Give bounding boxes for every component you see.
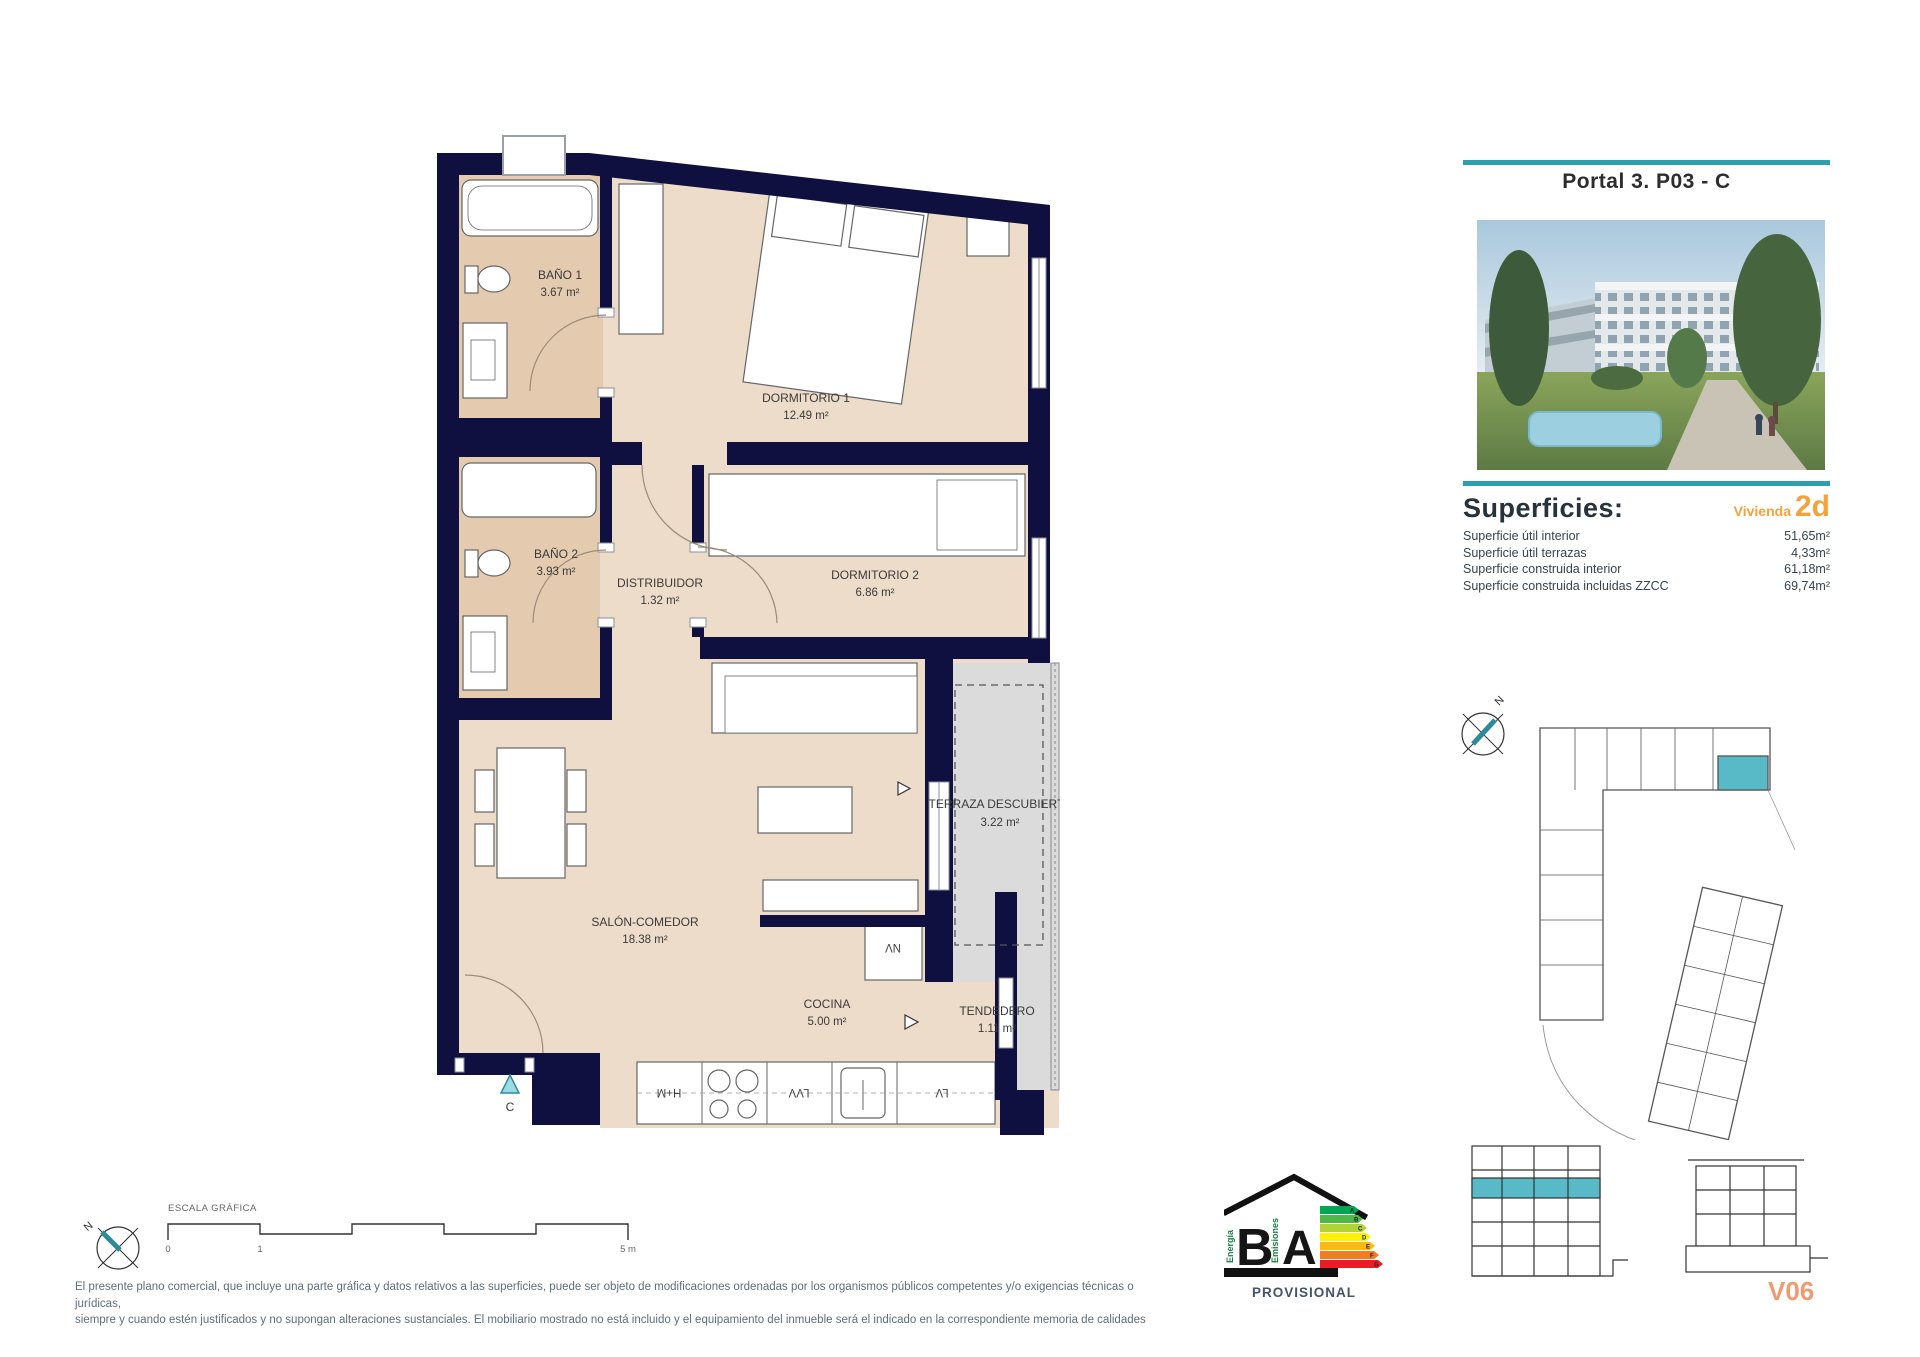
superficies-rows: Superficie útil interior 51,65m² Superfi… [1463,528,1830,594]
room-area-dorm2: 6.86 m² [856,587,895,599]
section-left [1472,1146,1628,1276]
scale-tick-5: 5 m [620,1244,636,1255]
compass-needle [102,1232,120,1250]
energy-scale-letter: B [1354,1218,1359,1224]
superficies-heading: Superficies: [1463,493,1624,524]
toilet-2 [478,550,510,576]
energy-rating-logo: Energía B Emisiones A A B C D E F G PROV… [1224,1170,1384,1302]
sup-label: Superficie construida interior [1463,561,1621,578]
plan-sheet: C BAÑO 1 3.67 m² BAÑO 2 3.93 m² DORMITOR… [0,0,1920,1357]
toilet-1-tank [465,266,478,293]
superficies-row: Superficie construida incluidas ZZCC 69,… [1463,578,1830,595]
room-area-bano2: 3.93 m² [537,566,576,578]
chair [567,770,586,812]
hob-burner [738,1100,756,1118]
keyplan-lower-building [1649,887,1783,1139]
toilet-1 [478,266,510,292]
scale-bar-steps [168,1224,628,1240]
superficies-row: Superficie útil terrazas 4,33m² [1463,545,1830,562]
superficies-row: Superficie construida interior 61,18m² [1463,561,1830,578]
coffee-table [758,787,852,833]
room-area-dorm1: 12.49 m² [783,410,829,422]
room-area-distribuidor: 1.32 m² [641,595,680,607]
key-plan: N [1455,690,1870,1140]
floor-plan: C BAÑO 1 3.67 m² BAÑO 2 3.93 m² DORMITOR… [437,118,1060,1135]
header-rule [1463,160,1830,165]
scale-tick-1: 1 [257,1244,262,1255]
keyplan-compass: N [1462,694,1507,755]
label-lv: LV [935,1086,949,1098]
shaft [503,136,565,175]
sup-value: 69,74m² [1784,578,1830,595]
energy-status: PROVISIONAL [1252,1285,1356,1300]
bush [1591,366,1643,390]
room-label-salon: SALÓN-COMEDOR [591,914,699,929]
vivienda-code: 2d [1795,490,1830,523]
label-lvv: LVV [788,1086,809,1098]
sup-label: Superficie útil interior [1463,528,1580,545]
compass-needle [1473,720,1495,744]
hob-burner [708,1070,730,1092]
scale-bar: ESCALA GRÁFICA 0 1 5 m [158,1198,658,1256]
energy-scale-letter: G [1374,1263,1379,1269]
superficies-row: Superficie útil interior 51,65m² [1463,528,1830,545]
tree [1667,328,1707,388]
sup-label: Superficie útil terrazas [1463,545,1587,562]
room-area-cocina: 5.00 m² [808,1016,847,1028]
dining-table [497,748,565,878]
room-label-dorm2: DORMITORIO 2 [831,568,919,582]
superficies-panel: Superficies: Vivienda2d Superficie útil … [1463,490,1830,594]
bathtub-2 [462,463,596,517]
energy-scale-letter: C [1358,1227,1363,1233]
energy-word: Energía [1225,1229,1235,1263]
room-label-dorm1: DORMITORIO 1 [762,391,850,405]
energy-letter: B [1236,1219,1274,1277]
plot-boundary [1543,1025,1670,1140]
sup-value: 61,18m² [1784,561,1830,578]
room-label-distribuidor: DISTRIBUIDOR [617,576,703,590]
tree [1489,250,1549,406]
person [1768,416,1776,424]
emissions-word: Emisiones [1270,1218,1280,1263]
chair [567,824,586,866]
sup-label: Superficie construida incluidas ZZCC [1463,578,1669,595]
hob-burner [736,1070,758,1092]
compass-north-label: N [82,1220,96,1234]
sup-value: 51,65m² [1784,528,1830,545]
entrance-label: C [506,1100,515,1114]
building-photo [1477,220,1825,470]
scale-bar-title: ESCALA GRÁFICA [168,1203,257,1214]
double-bed [743,186,929,404]
pillow [849,206,924,257]
section-right [1686,1160,1828,1272]
energy-scale-letter: F [1370,1254,1374,1260]
chair [475,770,494,812]
compass-bottom: N [78,1212,153,1282]
room-label-terraza: TERRAZA DESCUBIERTA [929,797,1060,811]
pool [1529,412,1661,446]
emissions-letter: A [1282,1222,1317,1275]
vivienda-tag: Vivienda2d [1734,490,1830,524]
person [1755,414,1763,422]
plan-code: V06 [1768,1276,1814,1307]
keyplan-building [1540,728,1782,1140]
highlighted-unit [1718,756,1768,790]
room-area-salon: 18.38 m² [622,934,668,946]
disclaimer-line-1: El presente plano comercial, que incluye… [75,1279,1160,1312]
room-area-terraza: 3.22 m² [981,817,1020,829]
hob-burner [710,1100,728,1118]
disclaimer-line-2: siempre y cuando estén justificados y no… [75,1312,1160,1329]
energy-scale-letter: D [1362,1236,1367,1242]
room-area-tendedero: 1.11 m² [978,1023,1016,1035]
page-title: Portal 3. P03 - C [1463,170,1830,194]
tree [1733,234,1821,406]
sup-value: 4,33m² [1791,545,1830,562]
entrance-marker-icon [501,1075,519,1093]
scale-tick-0: 0 [165,1244,170,1255]
wardrobe [619,184,663,334]
vivienda-label: Vivienda [1734,503,1791,519]
chair [475,824,494,866]
energy-scale-arrows: A B C D E F G [1320,1206,1383,1269]
room-label-bano1: BAÑO 1 [538,268,582,282]
toilet-2-tank [465,550,478,577]
pillow [937,480,1017,550]
compass-north-label: N [1493,694,1507,708]
room-area-bano1: 3.67 m² [541,287,580,299]
energy-scale-letter: A [1350,1209,1355,1215]
room-label-cocina: COCINA [804,997,851,1011]
energy-scale-letter: E [1366,1245,1370,1251]
room-label-bano2: BAÑO 2 [534,547,578,561]
room-label-tendedero: TENDEDERO [959,1004,1034,1018]
tv-cabinet [763,880,918,911]
legal-disclaimer: El presente plano comercial, que incluye… [75,1279,1160,1329]
building-photo-art [1477,220,1825,470]
label-hm: H+M [657,1086,682,1098]
label-nv: NV [885,941,901,953]
highlighted-floor [1472,1178,1600,1198]
superficies-rule [1463,481,1830,486]
